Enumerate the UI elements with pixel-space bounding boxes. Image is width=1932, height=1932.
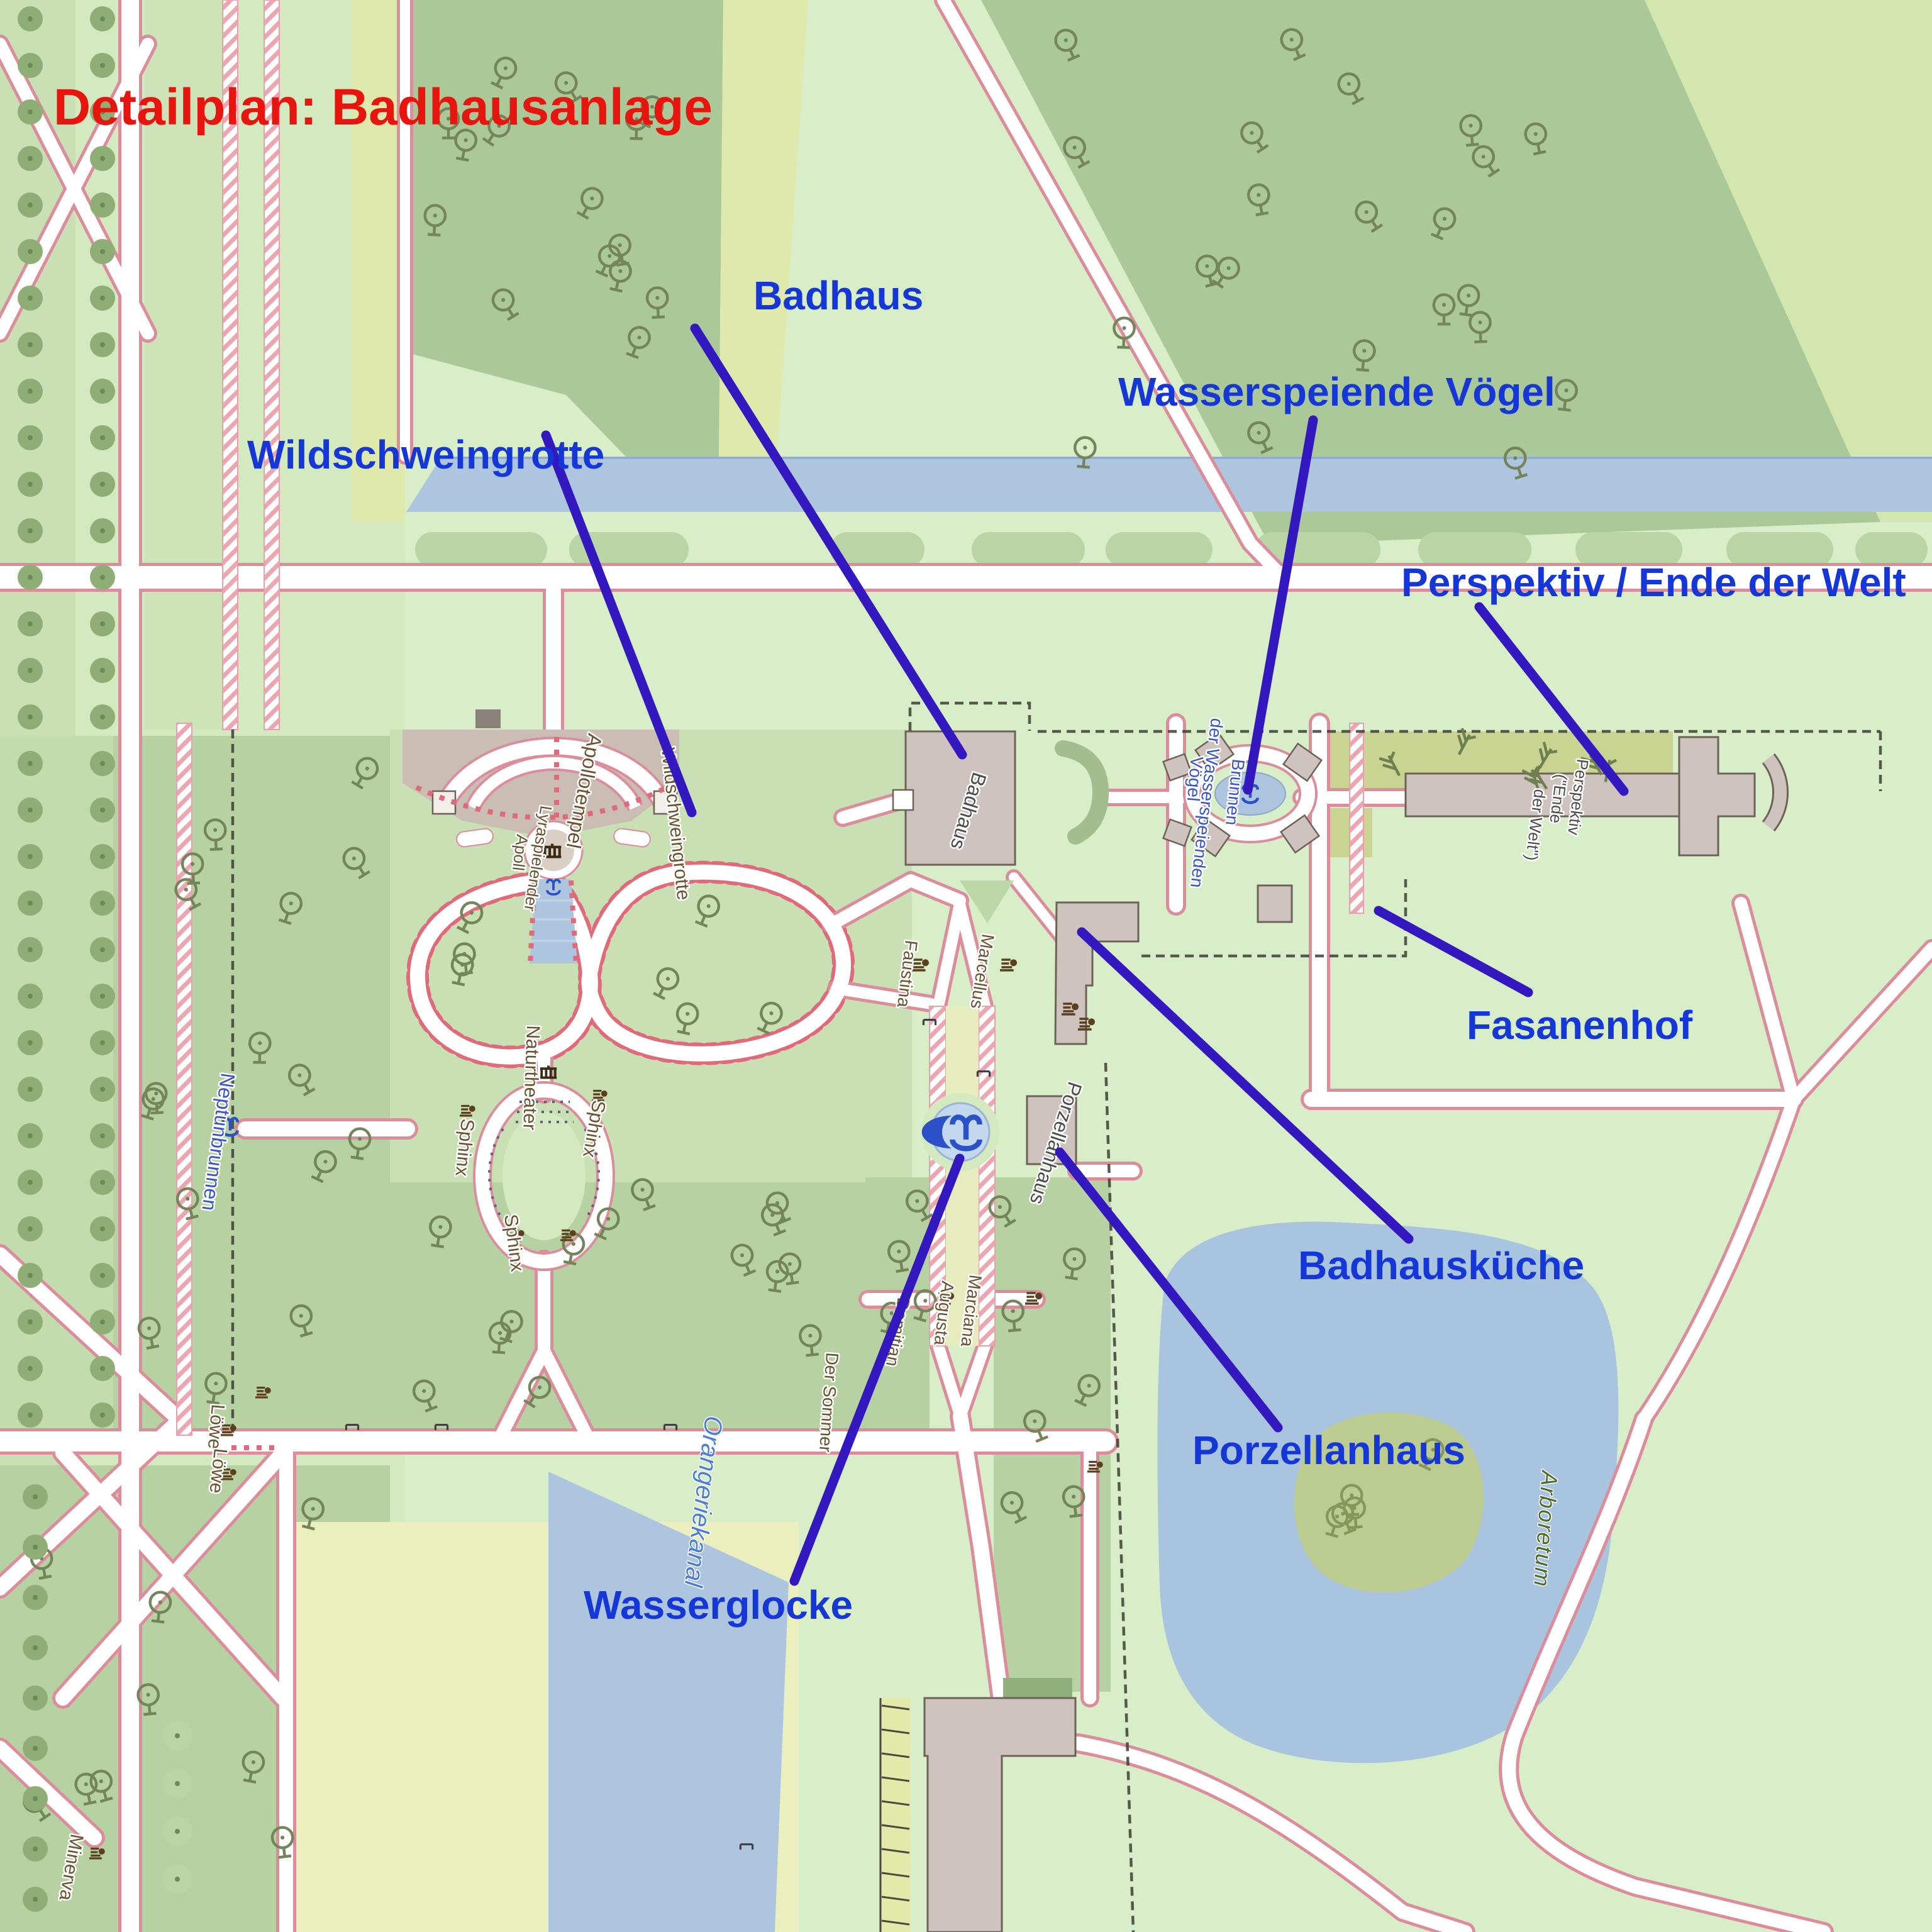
tree-circle-center xyxy=(100,668,105,673)
tree-circle-center xyxy=(100,901,105,906)
tree-circle-center xyxy=(100,714,105,719)
tree-circle-center xyxy=(28,808,33,813)
tree-circle-center xyxy=(100,389,105,394)
tree-circle-center xyxy=(28,947,33,952)
tree-circle-center xyxy=(100,296,105,301)
map-canvas: ApollotempelLyraspielenderApollWildschwe… xyxy=(0,0,1932,1932)
tree-circle-center xyxy=(28,109,33,114)
tree-circle-center xyxy=(100,1319,105,1324)
tree-circle-center xyxy=(100,1180,105,1185)
tree-circle-center xyxy=(28,1180,33,1185)
tree-circle-center xyxy=(28,1273,33,1278)
tree-circle-center xyxy=(100,621,105,626)
annotation-label: Fasanenhof xyxy=(1467,1002,1693,1048)
tree-circle-center xyxy=(100,1413,105,1418)
tree-circle-center xyxy=(100,1133,105,1138)
tree-circle-center xyxy=(28,1413,33,1418)
tree-circle-center xyxy=(28,714,33,719)
tree-circle-center xyxy=(28,16,33,21)
main-canal xyxy=(406,457,1932,512)
tree-circle-center xyxy=(175,1733,180,1738)
page-title: Detailplan: Badhausanlage xyxy=(53,79,713,136)
hedge-pill xyxy=(415,532,547,567)
tree-circle-center xyxy=(100,1087,105,1092)
tree-circle-center xyxy=(100,528,105,533)
tree-circle-center xyxy=(28,621,33,626)
tree-circle-center xyxy=(33,1746,38,1751)
tree-circle-center xyxy=(28,1087,33,1092)
tree-circle-center xyxy=(100,1273,105,1278)
annotation-label: Wasserglocke xyxy=(584,1582,853,1628)
tree-circle-center xyxy=(100,808,105,813)
tree-circle-center xyxy=(28,389,33,394)
tree-circle-center xyxy=(100,1366,105,1371)
hedge-pill xyxy=(1106,532,1213,567)
tree-circle-center xyxy=(33,1696,38,1701)
tree-circle-center xyxy=(100,994,105,999)
tree-circle-center xyxy=(28,994,33,999)
tree-circle-center xyxy=(28,854,33,859)
tree-circle-center xyxy=(175,1877,180,1882)
tree-circle-center xyxy=(33,1796,38,1801)
tree-circle-center xyxy=(100,947,105,952)
tree-circle-center xyxy=(28,203,33,208)
annotation-label: Badhausküche xyxy=(1298,1243,1584,1288)
tree-circle-center xyxy=(100,156,105,161)
tree-circle-center xyxy=(33,1846,38,1851)
tree-circle-center xyxy=(28,249,33,254)
tree-circle-center xyxy=(100,63,105,68)
annotation-label: Wasserspeiende Vögel xyxy=(1118,369,1555,414)
tree-circle-center xyxy=(100,1226,105,1231)
outbuilding xyxy=(1258,885,1292,922)
map-label: Löwe xyxy=(204,1403,228,1450)
tree-circle-center xyxy=(28,1133,33,1138)
tree-circle-center xyxy=(100,203,105,208)
tree-circle-center xyxy=(33,1545,38,1550)
small-building xyxy=(475,709,501,728)
tree-circle-center xyxy=(28,761,33,766)
annotation-label: Badhaus xyxy=(753,273,923,318)
tree-circle-center xyxy=(100,1040,105,1045)
map-page: ApollotempelLyraspielenderApollWildschwe… xyxy=(0,0,1932,1932)
tree-circle-center xyxy=(33,1595,38,1600)
tree-circle-center xyxy=(28,575,33,580)
tree-circle-center xyxy=(175,1829,180,1834)
tree-circle-center xyxy=(28,668,33,673)
tree-circle-center xyxy=(100,482,105,487)
tree-circle-center xyxy=(100,249,105,254)
tree-circle-center xyxy=(28,528,33,533)
tree-circle-center xyxy=(100,575,105,580)
tree-circle-center xyxy=(28,482,33,487)
tree-circle-center xyxy=(100,435,105,440)
tree-circle-center xyxy=(33,1645,38,1650)
tree-circle-center xyxy=(28,342,33,347)
map-label: Vögel xyxy=(1184,755,1207,802)
tree-circle-center xyxy=(28,435,33,440)
tree-circle-center xyxy=(28,1319,33,1324)
tree-circle-center xyxy=(28,901,33,906)
tree-circle-center xyxy=(28,1226,33,1231)
hedge-pill xyxy=(972,532,1085,567)
tree-circle-center xyxy=(100,761,105,766)
tree-circle-center xyxy=(100,854,105,859)
annotation-label: Wildschweingrotte xyxy=(247,432,604,477)
annotation-label: Perspektiv / Ende der Welt xyxy=(1401,560,1906,605)
tree-circle-center xyxy=(33,1494,38,1499)
annotation-label: Porzellanhaus xyxy=(1192,1428,1465,1473)
tree-circle-center xyxy=(28,1040,33,1045)
tree-circle-center xyxy=(33,1897,38,1902)
tree-circle-center xyxy=(100,16,105,21)
tree-circle-center xyxy=(28,296,33,301)
tree-circle-center xyxy=(28,63,33,68)
map-label: Naturtheater xyxy=(519,1025,543,1131)
tree-circle-center xyxy=(28,156,33,161)
tree-circle-center xyxy=(100,342,105,347)
tree-circle-center xyxy=(175,1781,180,1786)
tree-circle-center xyxy=(28,1366,33,1371)
